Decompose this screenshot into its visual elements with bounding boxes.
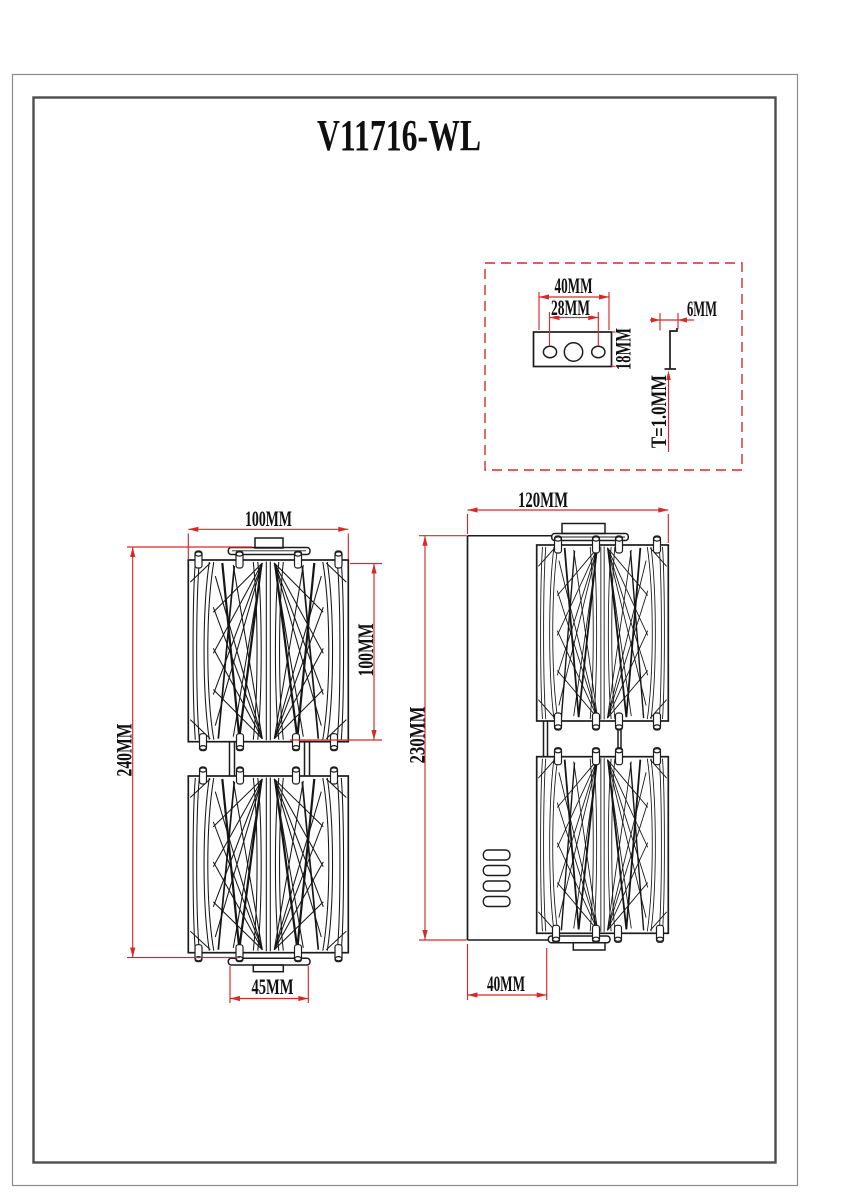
mounting-tab — [593, 536, 600, 553]
front-view: 100MM 240MM 100MM 45MM — [112, 506, 383, 1003]
mounting-tab — [657, 925, 664, 942]
mounting-tab — [331, 734, 338, 751]
dim-label-thickness-wrap: T=1.0MM — [646, 375, 671, 448]
mounting-tab — [555, 713, 562, 730]
mounting-tab — [195, 945, 202, 962]
mounting-tab — [555, 536, 562, 553]
crystal-half — [190, 777, 266, 951]
mounting-tab — [293, 734, 300, 751]
crystal-half — [270, 562, 346, 741]
drawing-title: V11716-WL — [317, 111, 481, 160]
crystal-half — [270, 777, 346, 951]
mounting-tab — [331, 767, 338, 784]
mounting-tab — [555, 748, 562, 765]
mounting-tab — [200, 734, 207, 751]
bracket-plate — [534, 332, 612, 367]
mounting-tab — [237, 767, 244, 784]
mounting-tab — [195, 551, 202, 568]
dim-label-thickness: T=1.0MM — [646, 375, 671, 448]
mounting-tab — [593, 925, 600, 942]
dim-label-hole-spacing: 28MM — [551, 295, 590, 320]
front-shade-module-2 — [188, 776, 348, 953]
mounting-tab — [236, 945, 243, 962]
mounting-tab — [616, 713, 623, 730]
dim-label-flange-width: 6MM — [687, 296, 717, 321]
mounting-tab — [295, 551, 302, 568]
mounting-tab — [616, 536, 623, 553]
mounting-tab — [615, 925, 622, 942]
mounting-tab — [553, 925, 560, 942]
dim-label-bracket-height-wrap: 18MM — [611, 326, 636, 372]
dim-label-body-height-wrap: 230MM — [405, 706, 430, 763]
dim-label-module-height: 100MM — [353, 623, 378, 676]
dim-overall-width — [468, 510, 669, 543]
crystal-half — [538, 758, 601, 932]
side-shade-module-1 — [537, 545, 669, 721]
side-backplate — [468, 536, 552, 940]
mounting-tab — [654, 536, 661, 553]
dim-label-overall-height-wrap: 240MM — [112, 723, 137, 776]
mounting-tab — [593, 748, 600, 765]
dim-label-overall-width: 120MM — [518, 487, 568, 512]
drawing-page: V11716-WL 40MM 28MM — [0, 0, 848, 1200]
arrow-6mm-left — [651, 317, 660, 322]
mounting-tab — [236, 551, 243, 568]
technical-drawing: V11716-WL 40MM 28MM — [0, 0, 848, 1200]
mounting-tab — [335, 945, 342, 962]
dim-label-overall-height: 240MM — [112, 723, 137, 776]
dim-label-bracket-height: 18MM — [611, 328, 636, 370]
crystal-half — [604, 546, 667, 719]
crystal-half — [604, 758, 667, 932]
mounting-tab — [654, 713, 661, 730]
crystal-half — [538, 546, 601, 719]
mounting-tab — [200, 767, 207, 784]
mounting-tab — [616, 748, 623, 765]
arrow-6mm-right — [678, 317, 687, 322]
mounting-tab — [654, 748, 661, 765]
side-shade-module-2 — [537, 757, 669, 934]
dim-label-backplate-depth: 40MM — [487, 971, 525, 996]
front-shade-module-1 — [188, 560, 348, 742]
dim-label-canopy-width: 45MM — [252, 974, 294, 999]
mounting-tab — [335, 551, 342, 568]
frame-outer — [13, 75, 798, 1186]
crystal-half — [190, 562, 266, 741]
detail-inset: 40MM 28MM 18MM 6MM — [485, 263, 742, 470]
mounting-tab — [593, 713, 600, 730]
bracket-side-profile — [665, 328, 678, 369]
side-view: 120MM 230MM 40MM — [405, 487, 669, 1000]
dim-label-body-height: 230MM — [405, 706, 430, 763]
mounting-tab — [293, 767, 300, 784]
dim-label-shade-width: 100MM — [245, 506, 292, 531]
dim-label-module-height-wrap: 100MM — [353, 623, 378, 676]
mounting-tab — [237, 734, 244, 751]
mounting-tab — [295, 945, 302, 962]
